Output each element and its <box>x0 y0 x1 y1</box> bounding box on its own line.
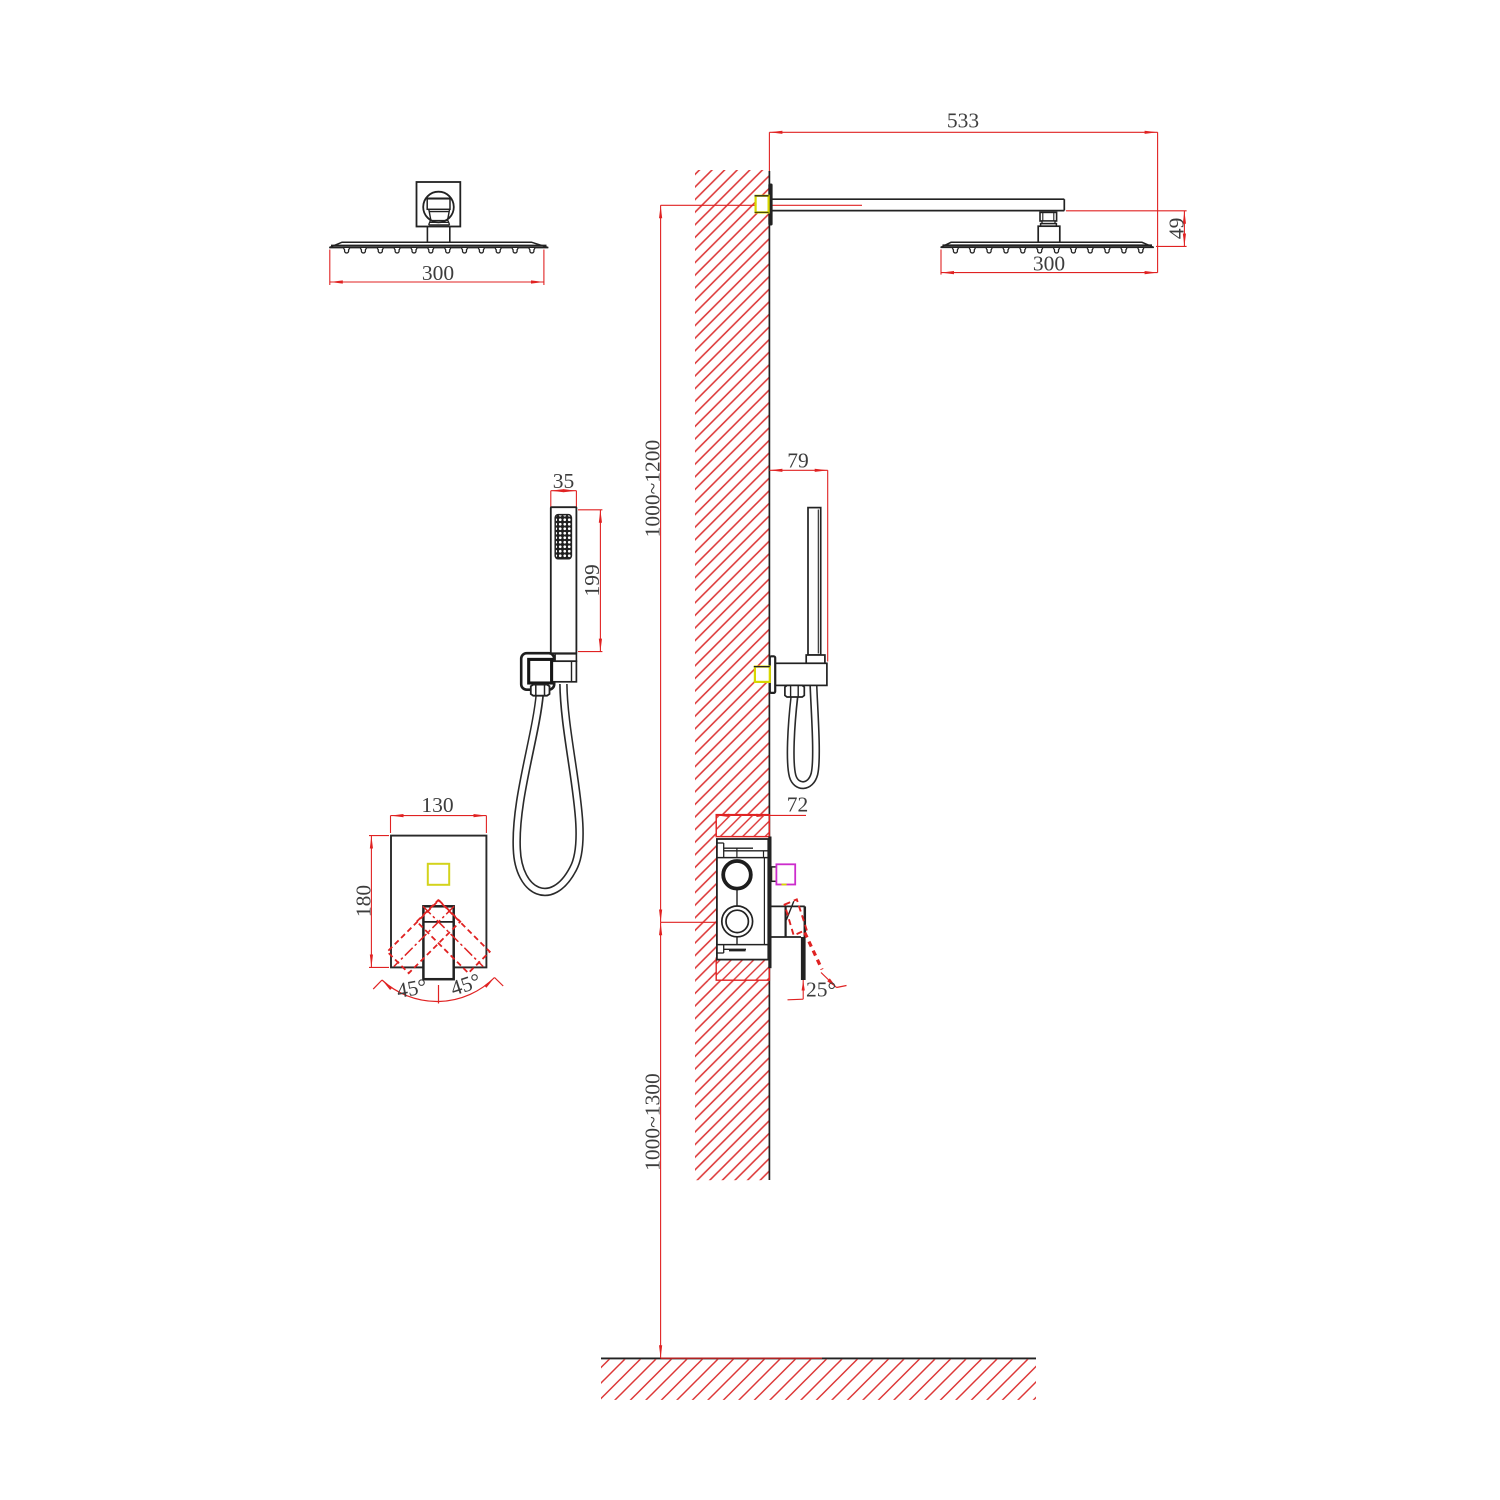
svg-text:130: 130 <box>421 793 453 817</box>
svg-text:35: 35 <box>553 469 575 493</box>
svg-text:72: 72 <box>787 793 809 817</box>
svg-text:1000~1300: 1000~1300 <box>640 1073 664 1171</box>
svg-text:533: 533 <box>947 109 979 133</box>
svg-text:25°: 25° <box>806 978 836 1002</box>
svg-text:199: 199 <box>580 564 604 596</box>
svg-text:300: 300 <box>1033 251 1065 275</box>
svg-text:79: 79 <box>787 449 809 473</box>
svg-text:180: 180 <box>351 885 375 917</box>
svg-text:300: 300 <box>422 261 454 285</box>
svg-text:1000~1200: 1000~1200 <box>640 440 664 538</box>
svg-text:49: 49 <box>1165 218 1189 240</box>
